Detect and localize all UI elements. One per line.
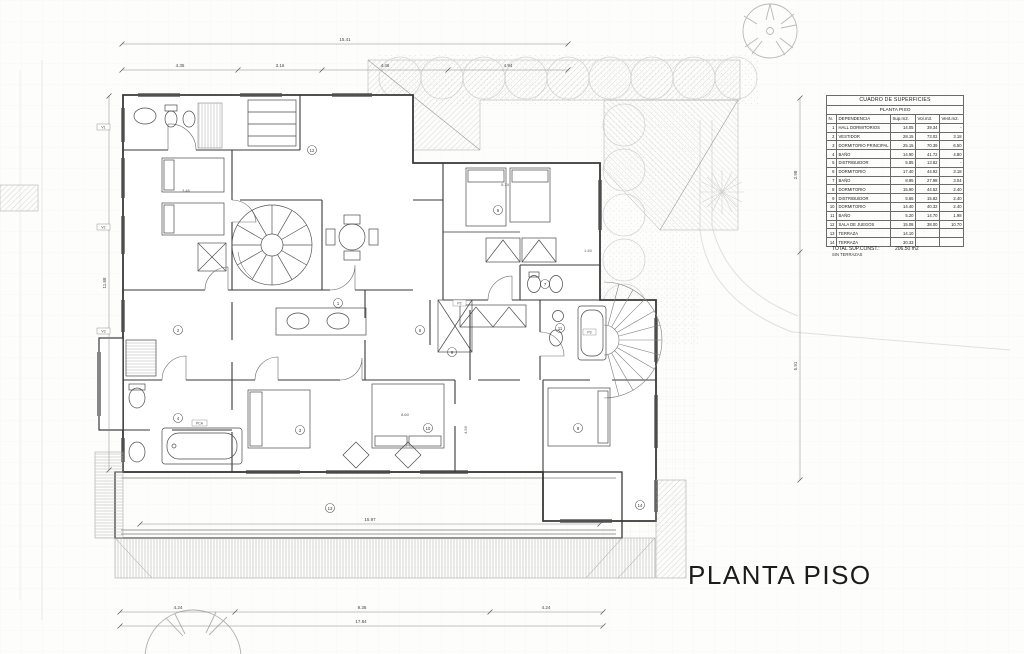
dim-interior-3: 8.60 <box>401 412 410 417</box>
table-row: 4BAÑO14.9041.724.80 <box>827 150 964 159</box>
dim-interior-4: 4.56 <box>463 425 468 434</box>
table-row: 13TERRAZA14.10 <box>827 229 964 238</box>
svg-text:PCA: PCA <box>196 422 204 426</box>
table-row: 1HALL DORMITORIOS14.0539.34- <box>827 123 964 132</box>
svg-text:14: 14 <box>638 503 643 508</box>
table-row: 7BAÑO8.9527.983.04 <box>827 176 964 185</box>
dim-right-lower: 5.91 <box>793 361 798 370</box>
dim-interior-5: 1.40 <box>584 248 593 253</box>
dim-interior-1: 3.46 <box>182 188 191 193</box>
surfaces-table-subtitle: PLANTA PISO <box>827 106 964 115</box>
table-row: 5DISTRIBUIDOR5.8513.82- <box>827 158 964 167</box>
surfaces-table-title: CUADRO DE SUPERFICIES <box>827 96 964 106</box>
dim-interior-2: 5.74 <box>501 182 510 187</box>
dim-top-seg-3: 4.46 <box>381 63 390 68</box>
dim-top-seg-2: 3.16 <box>276 63 285 68</box>
table-row: 3DORMITORIO PRINCIPAL25.1570.396.50 <box>827 141 964 150</box>
dim-left-height: 11.68 <box>102 277 107 288</box>
garden-wall-fragment <box>0 185 38 211</box>
surfaces-table: CUADRO DE SUPERFICIES PLANTA PISO N. DEP… <box>826 95 964 247</box>
svg-text:P2: P2 <box>457 302 461 306</box>
dim-top-seg-4: 4.94 <box>504 63 513 68</box>
total-block: TOTAL SUP.CONST.: 206.50 m2 SIN TERRAZAS <box>832 246 919 258</box>
table-row: 10DORMITORIO14.4040.322.40 <box>827 202 964 211</box>
table-row: 12SALA DE JUEGOS15.0838.0010.70 <box>827 220 964 229</box>
dim-bottom-seg-3: 4.24 <box>542 605 551 610</box>
table-row: 9DISTRIBUIDOR5.6515.822.40 <box>827 194 964 203</box>
svg-text:V1: V1 <box>101 126 105 130</box>
blueprint-sheet: 15.41 4.35 3.16 4.46 4.94 4.24 9.36 4.24… <box>0 0 1024 654</box>
table-row: 8DORMITORIO15.9044.522.40 <box>827 185 964 194</box>
dim-terrace-width: 15.97 <box>364 517 376 522</box>
svg-text:13: 13 <box>328 506 333 511</box>
dim-top-seg-1: 4.35 <box>176 63 185 68</box>
dim-bottom-seg-2: 9.36 <box>358 605 367 610</box>
svg-text:P3: P3 <box>587 331 591 335</box>
total-value: 206.50 m2 <box>895 246 919 252</box>
surfaces-table-body: 1HALL DORMITORIOS14.0539.34-2VESTIDOR28.… <box>827 123 964 246</box>
page-title: PLANTA PISO <box>688 560 872 591</box>
dim-right-upper: 2.98 <box>793 170 798 179</box>
svg-text:V3: V3 <box>101 330 105 334</box>
total-note: SIN TERRAZAS <box>832 252 919 258</box>
table-row: 11BAÑO5.2014.701.98 <box>827 211 964 220</box>
svg-text:V2: V2 <box>101 226 105 230</box>
svg-text:12: 12 <box>310 148 315 153</box>
table-row: 6DORMITORIO17.4044.923.18 <box>827 167 964 176</box>
service-stair-hatch <box>198 103 222 148</box>
table-row: 2VESTIDOR28.1573.023.18 <box>827 132 964 141</box>
svg-text:10: 10 <box>426 426 431 431</box>
surfaces-table-header-row: N. DEPENDENCIA Sup.m2. Vol.m3. Vent.m2. <box>827 115 964 124</box>
dim-bottom-seg-1: 4.24 <box>174 605 183 610</box>
bay-window <box>99 338 123 430</box>
dim-bottom-total: 17.84 <box>355 619 367 624</box>
svg-text:11: 11 <box>558 326 563 331</box>
dim-top-total: 15.41 <box>339 37 351 42</box>
